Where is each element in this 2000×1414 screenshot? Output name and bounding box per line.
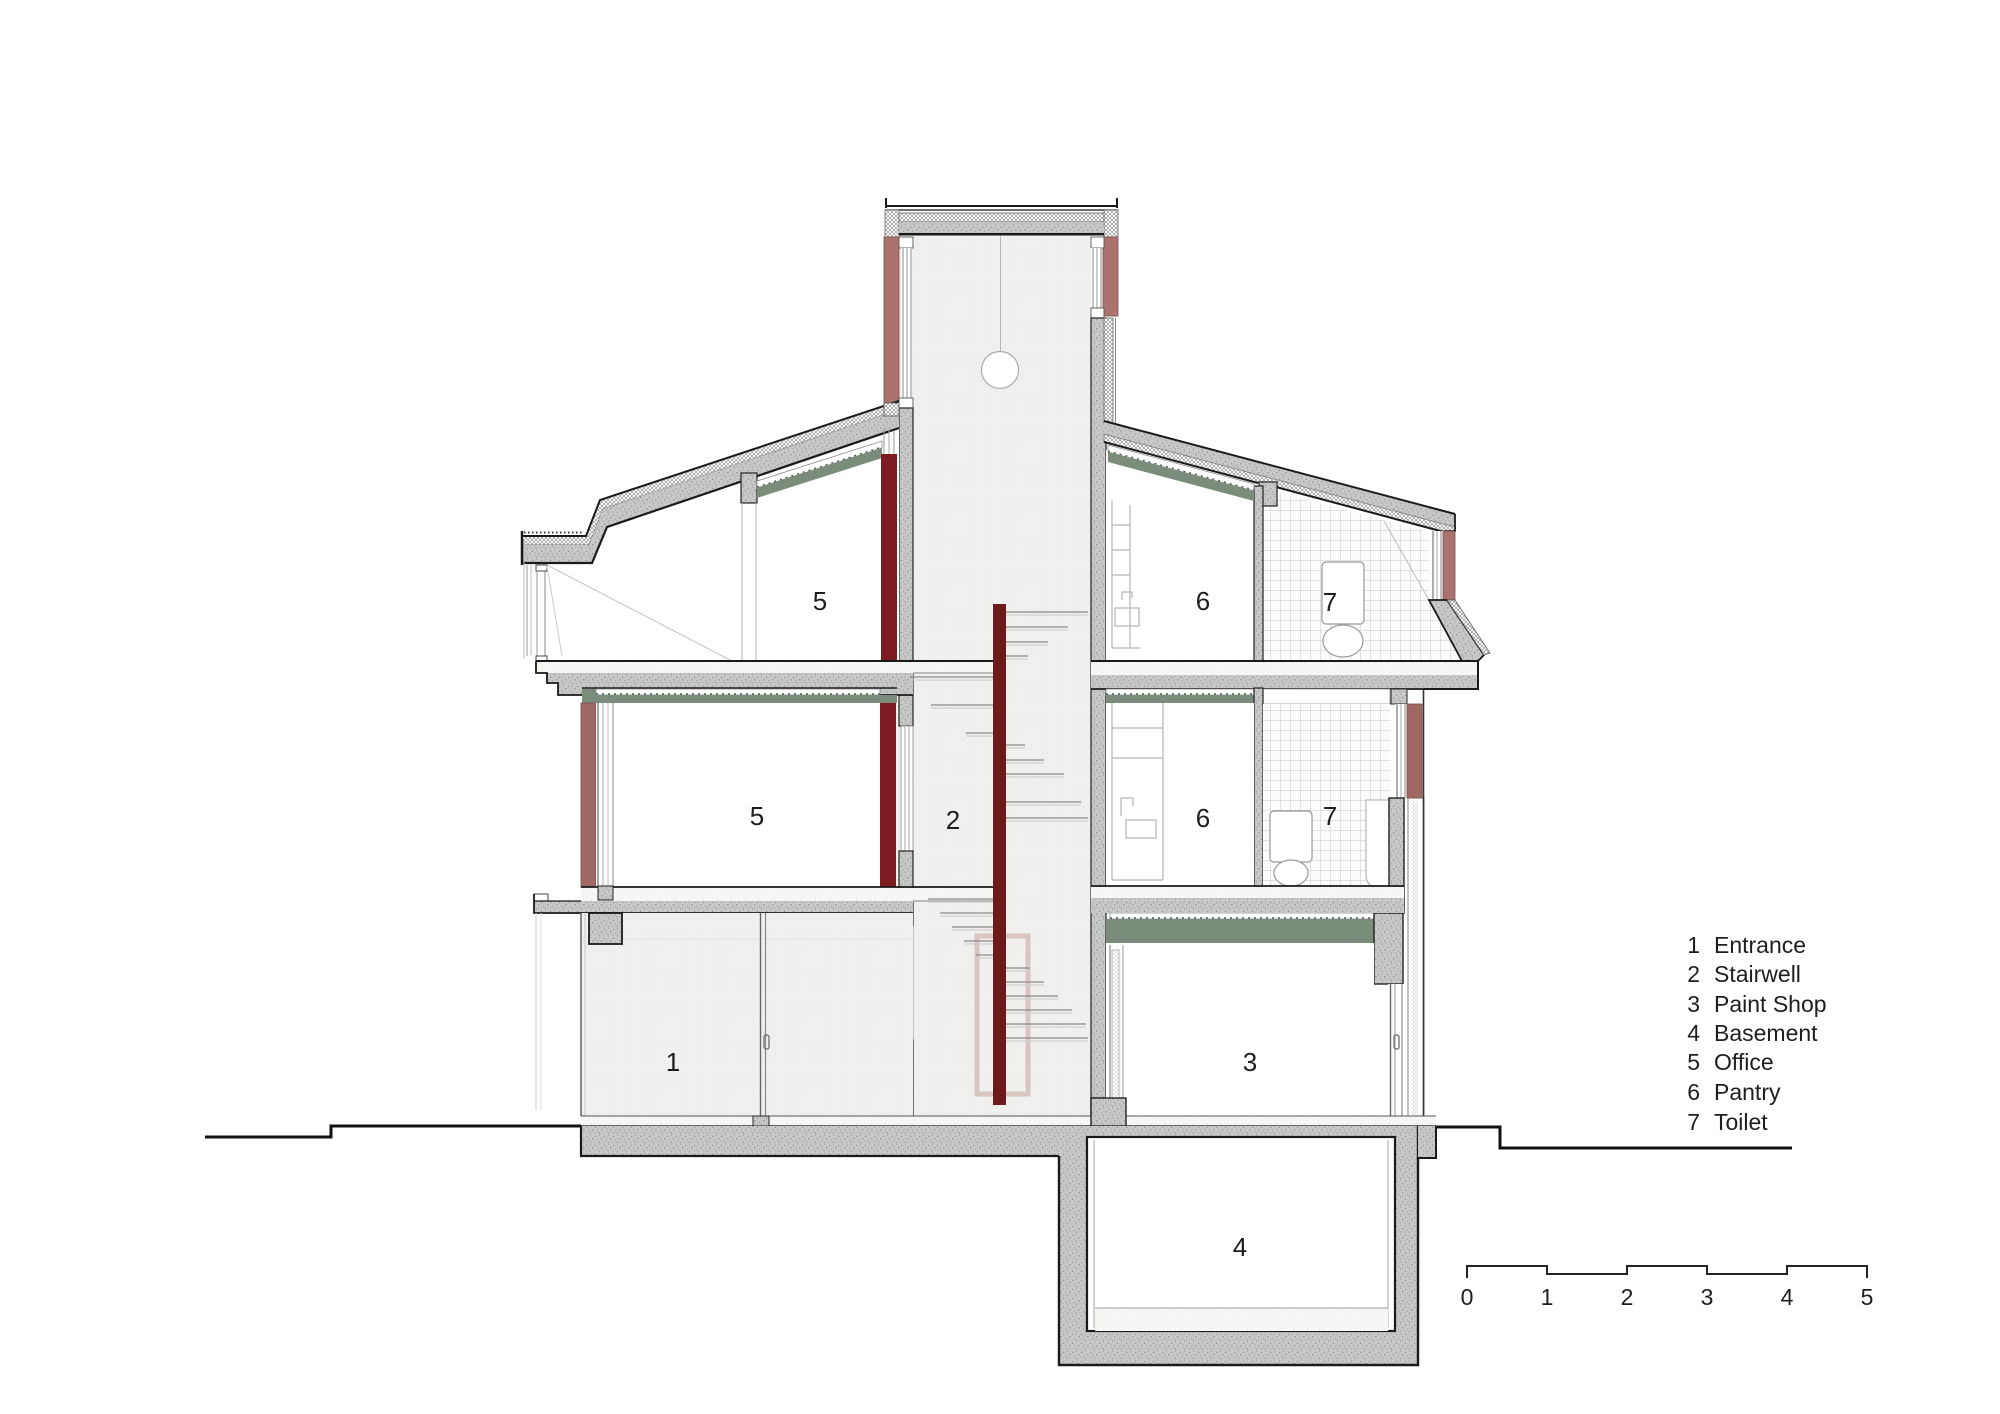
svg-text:Pantry: Pantry [1714, 1079, 1781, 1105]
svg-text:Toilet: Toilet [1714, 1109, 1768, 1135]
svg-text:2: 2 [1621, 1284, 1634, 1310]
svg-text:1: 1 [666, 1047, 680, 1077]
svg-text:7: 7 [1687, 1109, 1700, 1135]
svg-text:Entrance: Entrance [1714, 932, 1806, 958]
svg-text:7: 7 [1323, 587, 1337, 617]
svg-text:4: 4 [1687, 1020, 1700, 1046]
svg-text:Stairwell: Stairwell [1714, 961, 1801, 987]
svg-text:0: 0 [1461, 1284, 1474, 1310]
svg-text:5: 5 [1861, 1284, 1874, 1310]
svg-text:7: 7 [1323, 801, 1337, 831]
svg-text:5: 5 [750, 801, 764, 831]
svg-text:Paint Shop: Paint Shop [1714, 991, 1827, 1017]
svg-text:2: 2 [946, 805, 960, 835]
svg-text:4: 4 [1233, 1232, 1247, 1262]
svg-text:1: 1 [1541, 1284, 1554, 1310]
svg-text:6: 6 [1196, 586, 1210, 616]
svg-text:5: 5 [813, 586, 827, 616]
svg-text:3: 3 [1701, 1284, 1714, 1310]
svg-text:5: 5 [1687, 1049, 1700, 1075]
svg-text:3: 3 [1243, 1047, 1257, 1077]
svg-text:1: 1 [1687, 932, 1700, 958]
svg-text:2: 2 [1687, 961, 1700, 987]
svg-text:6: 6 [1196, 803, 1210, 833]
svg-text:Basement: Basement [1714, 1020, 1818, 1046]
svg-text:6: 6 [1687, 1079, 1700, 1105]
svg-text:4: 4 [1781, 1284, 1794, 1310]
svg-text:Office: Office [1714, 1049, 1774, 1075]
svg-text:3: 3 [1687, 991, 1700, 1017]
